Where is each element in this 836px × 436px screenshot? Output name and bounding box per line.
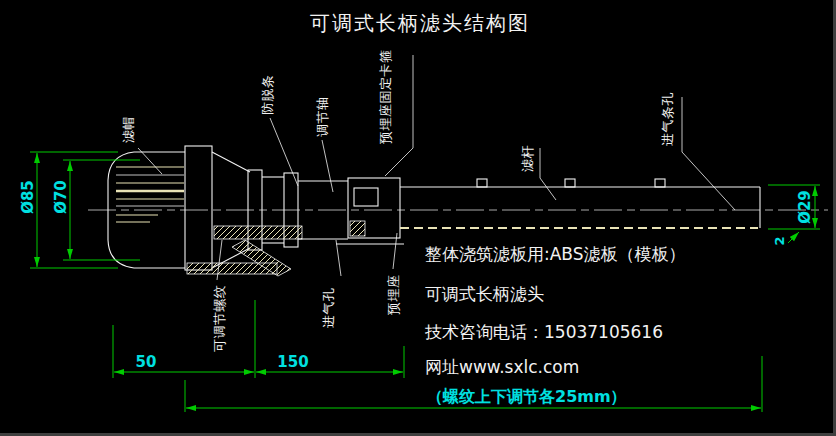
seat-bottom-band <box>187 263 277 274</box>
drawing-title: 可调式长柄滤头结构图 <box>310 11 530 35</box>
dim-text-50: 50 <box>136 353 157 371</box>
note-board: 整体浇筑滤板用:ABS滤板（模板） <box>425 244 686 264</box>
label-adjustable-thread: 可调节螺纹 <box>212 285 227 353</box>
label-embedded-clamp: 预埋座固定卡箍 <box>378 50 393 146</box>
leader-air-hole <box>336 240 341 276</box>
leader-filter-rod <box>540 148 556 200</box>
dim-text-wall: 2 <box>772 236 787 245</box>
drawing-svg: 可调式长柄滤头结构图 <box>0 0 836 436</box>
rod-joint-collar <box>477 179 487 187</box>
label-embedded-seat: 预埋座 <box>386 275 401 317</box>
note-product-name: 可调式长柄滤头 <box>425 284 544 304</box>
dim-line-wall <box>788 232 799 243</box>
cone-top-line <box>212 152 250 172</box>
notes-block: 整体浇筑滤板用:ABS滤板（模板） 可调式长柄滤头 技术咨询电话：1503710… <box>424 244 686 406</box>
embedded-clamp-box <box>336 178 404 244</box>
filter-head-assembly <box>108 146 348 276</box>
leader-air-slot-holes <box>682 97 735 210</box>
leader-adjust-shaft <box>322 140 333 192</box>
thread-hatch-band <box>214 226 302 239</box>
part-labels: 滤帽 防脱条 调节轴 预埋座固定卡箍 滤杆 进气条孔 可调节螺纹 进气孔 预埋座 <box>121 50 675 353</box>
dim-text-cap-outer: Ø85 <box>19 180 37 214</box>
note-website: 网址www.sxlc.com <box>425 357 579 377</box>
cad-canvas: 可调式长柄滤头结构图 <box>0 0 836 436</box>
note-thread-adjust: （螺纹上下调节各25mm） <box>427 387 627 406</box>
rod-joint-collar <box>565 179 575 187</box>
flange-plate <box>185 146 212 270</box>
label-cap: 滤帽 <box>121 116 136 143</box>
label-adjust-shaft: 调节轴 <box>315 97 330 138</box>
note-phone: 技术咨询电话：15037105616 <box>424 322 663 342</box>
label-filter-rod: 滤杆 <box>520 145 535 172</box>
dim-text-cap-slot: Ø70 <box>52 180 70 214</box>
label-air-hole: 进气孔 <box>321 288 336 329</box>
clamp-hatch-block <box>350 221 365 236</box>
dim-text-150: 150 <box>277 353 308 371</box>
label-air-slot-holes: 进气条孔 <box>660 92 675 146</box>
dim-text-rod: Ø29 <box>796 190 814 224</box>
filter-rod <box>400 179 760 228</box>
clamp-inner-box <box>354 188 378 206</box>
rod-joint-collar <box>655 179 665 187</box>
label-anti-slip-strip: 防脱条 <box>260 75 275 116</box>
